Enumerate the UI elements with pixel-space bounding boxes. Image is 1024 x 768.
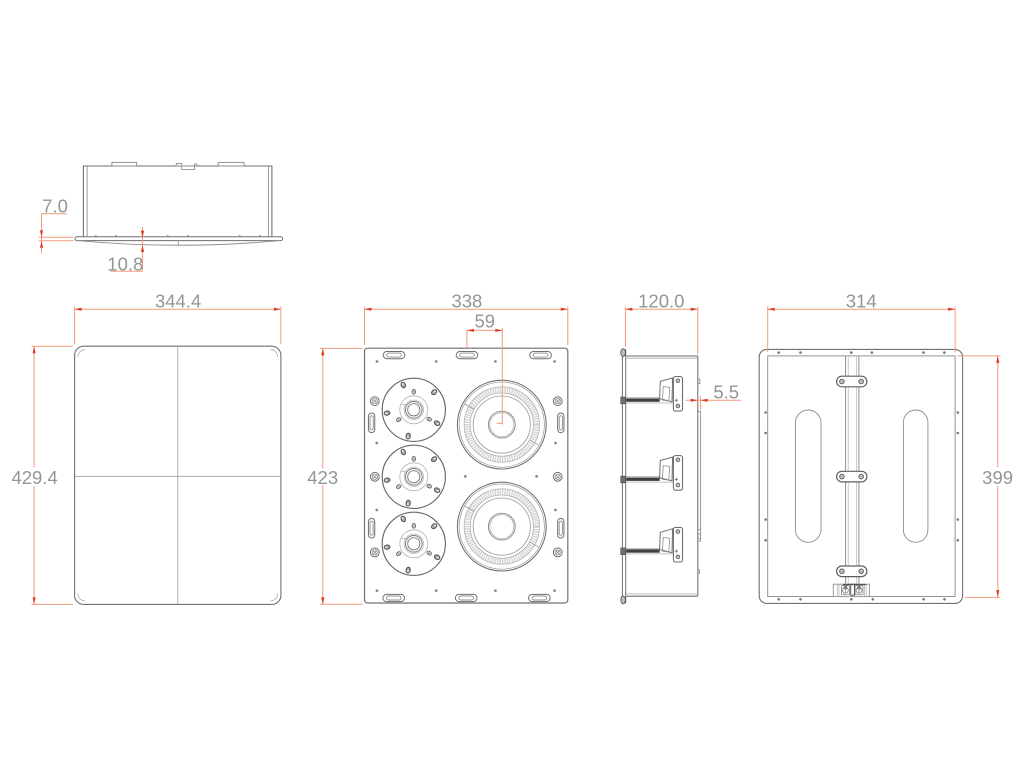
svg-text:338: 338 bbox=[451, 290, 482, 311]
svg-text:5.5: 5.5 bbox=[713, 382, 739, 403]
svg-text:120.0: 120.0 bbox=[638, 290, 684, 311]
svg-text:399: 399 bbox=[982, 467, 1013, 488]
svg-text:314: 314 bbox=[846, 290, 877, 311]
svg-text:7.0: 7.0 bbox=[42, 195, 68, 216]
svg-text:344.4: 344.4 bbox=[155, 290, 201, 311]
svg-text:429.4: 429.4 bbox=[11, 467, 57, 488]
svg-text:423: 423 bbox=[307, 467, 338, 488]
svg-text:59: 59 bbox=[475, 310, 496, 331]
